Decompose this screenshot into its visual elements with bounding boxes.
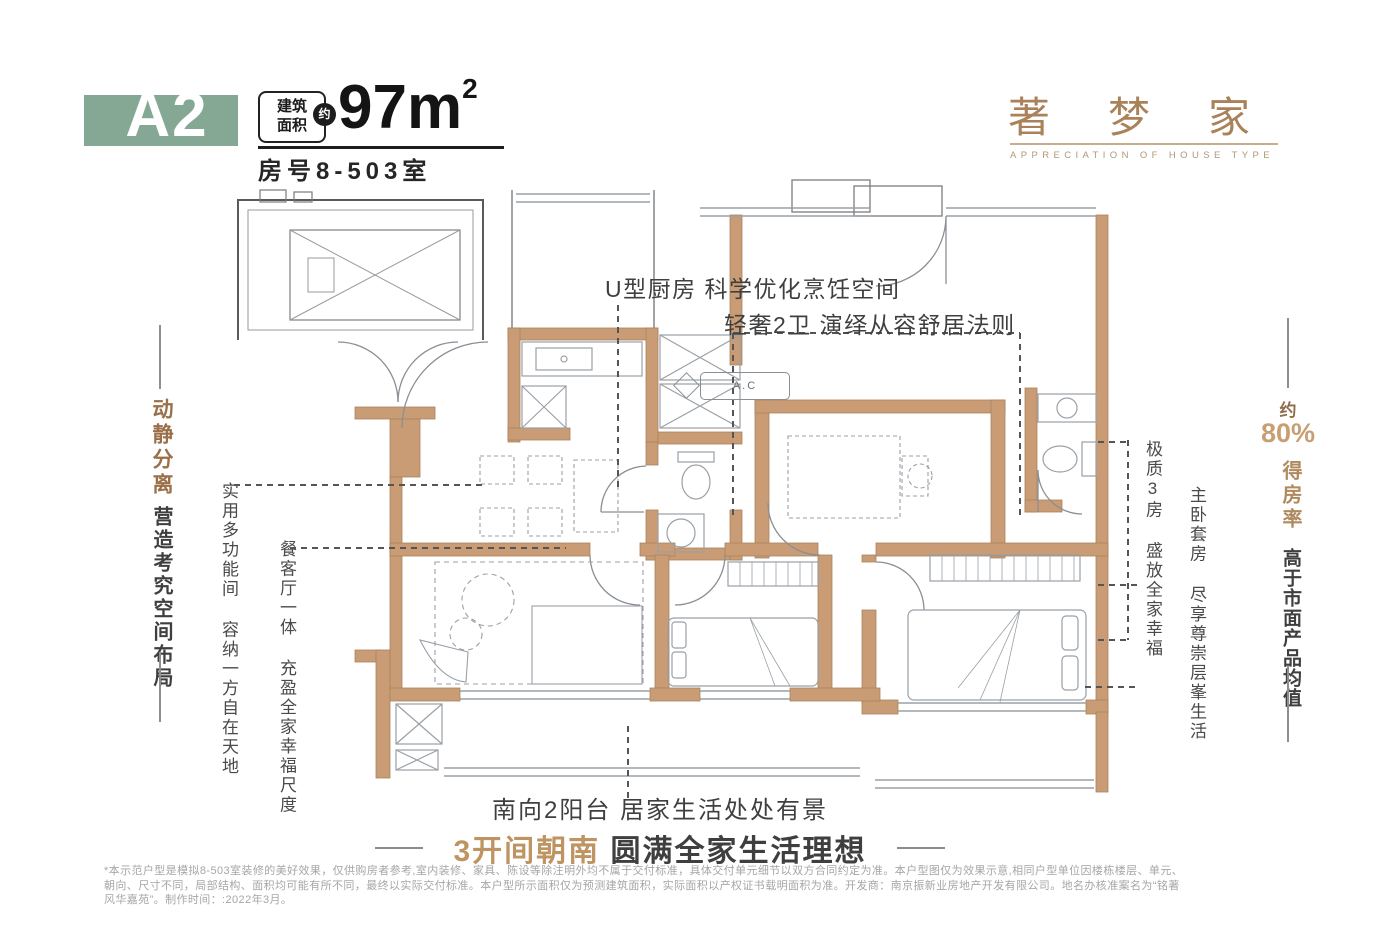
- left-rail-tick-bottom: [159, 652, 161, 722]
- brand-title: 著梦家: [1008, 84, 1298, 145]
- rate-label: 得房率: [1276, 460, 1305, 532]
- note-master-suite: 主卧套房 尽享尊崇层峯生活: [1184, 486, 1209, 742]
- disclaimer-line3: 风华嘉苑”。制作时间：:2022年3月。: [104, 893, 1309, 908]
- approx-badge: 约: [313, 103, 336, 126]
- core-area: [238, 190, 483, 340]
- ac-unit-label: A.C: [700, 372, 790, 400]
- area-unit-sup: 2: [462, 73, 478, 104]
- master-bedroom: [908, 555, 1086, 702]
- rate-value: 80%: [1256, 418, 1320, 449]
- disclaimer-line1: *本示范户型是模拟8-503室装修的美好效果，仅供购房者参考,室内装修、家具、陈…: [104, 864, 1309, 879]
- floor-plan: [230, 170, 1140, 800]
- area-value: 97m2: [338, 72, 478, 143]
- left-rail-statement: 营造考究空间布局: [150, 506, 172, 690]
- balcony-main: [396, 704, 442, 770]
- unit-code: A2: [92, 78, 242, 154]
- ac-outdoor-units: [792, 180, 942, 216]
- disclaimer-line2: 朝向、尺寸不同，局部结构、面积均可能有所不同，最终以实际交付标准。本户型所示面积…: [104, 879, 1309, 894]
- right-rail-statement: 高于市面产品均值: [1277, 548, 1304, 708]
- note-three-rooms: 极质3房 盛放全家幸福: [1140, 440, 1165, 659]
- brand-divider: [1010, 143, 1278, 145]
- area-badge-line1: 建筑: [277, 98, 307, 117]
- left-rail-tick-top: [159, 325, 161, 389]
- living-dining: [480, 456, 618, 536]
- corridor: [512, 190, 654, 328]
- bath-annotation: 轻奢2卫 演绎从容舒居法则: [724, 306, 1016, 340]
- kitchen-annotation: U型厨房 科学优化烹饪空间: [605, 270, 901, 304]
- right-rail-tick-bottom: [1287, 666, 1289, 742]
- left-rail-text: 动静分离营造考究空间布局: [146, 398, 176, 690]
- area-badge-line2: 面积: [277, 117, 307, 136]
- bath-1: [658, 452, 714, 552]
- left-rail-headline: 动静分离: [150, 398, 173, 498]
- bedroom-a: [420, 562, 643, 684]
- disclaimer: *本示范户型是模拟8-503室装修的美好效果，仅供购房者参考,室内装修、家具、陈…: [104, 864, 1309, 908]
- bedroom-b: [668, 562, 818, 686]
- header-divider: [258, 146, 504, 149]
- tagline-dash-right: [897, 847, 945, 850]
- bath-2: [1038, 394, 1096, 476]
- bedroom-2: [788, 436, 932, 518]
- balcony-annotation: 南向2阳台 居家生活处处有景: [400, 790, 920, 825]
- brand-subtitle: APPRECIATION OF HOUSE TYPE: [1010, 150, 1278, 161]
- tagline-dash-left: [375, 847, 423, 850]
- right-rail-tick-top: [1287, 318, 1289, 388]
